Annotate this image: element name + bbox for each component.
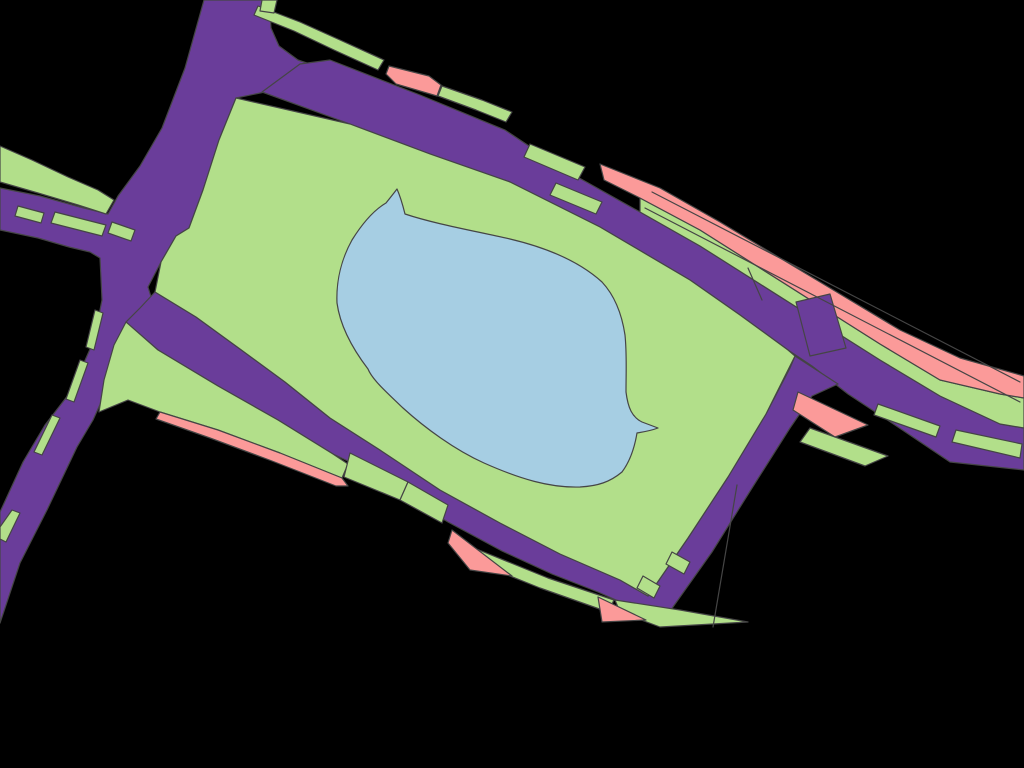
grass-south-tip — [615, 600, 748, 627]
map-canvas — [0, 0, 1024, 768]
landcover-map — [0, 0, 1024, 768]
grass-top-notch — [260, 0, 277, 13]
